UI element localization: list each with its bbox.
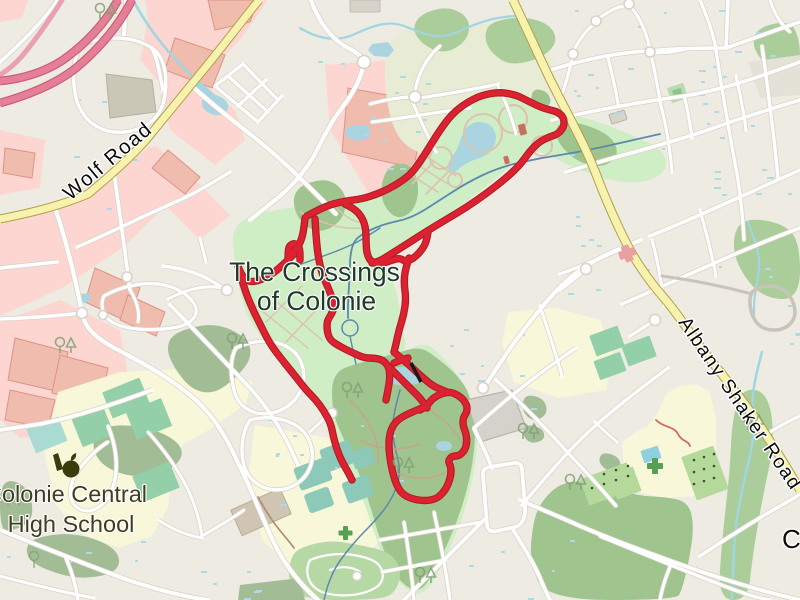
svg-text:of Colonie: of Colonie bbox=[257, 286, 376, 316]
svg-text:Colonie Central: Colonie Central bbox=[0, 481, 147, 507]
svg-text:The Crossings: The Crossings bbox=[229, 257, 400, 287]
svg-text:High School: High School bbox=[8, 511, 135, 537]
svg-text:C: C bbox=[782, 524, 800, 554]
